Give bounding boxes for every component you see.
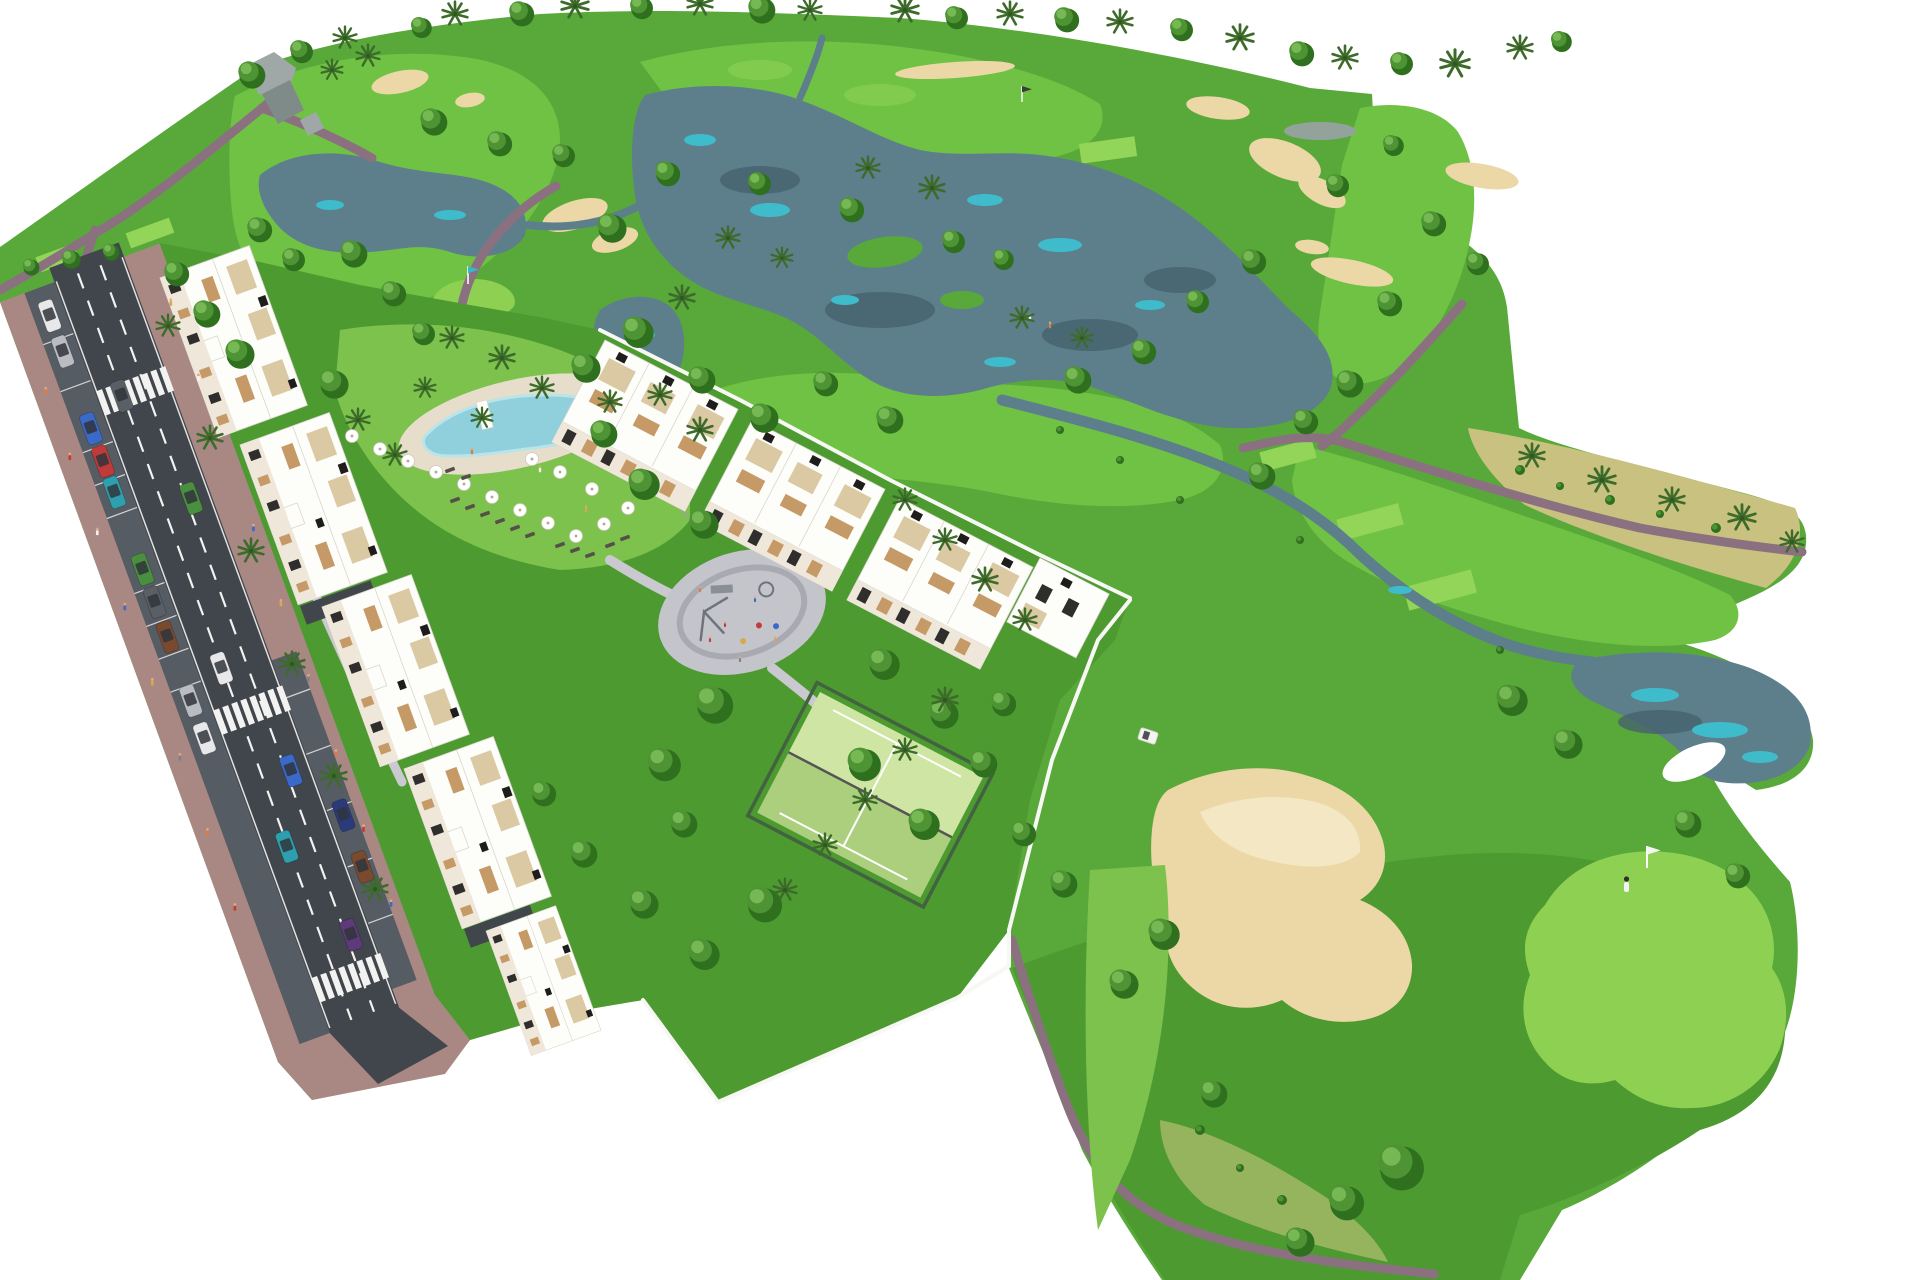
umbrella-icon xyxy=(526,453,539,466)
umbrella-icon xyxy=(586,483,599,496)
bush-icon xyxy=(1116,456,1124,464)
golf-resort-render: Aerial 3D architectural rendering of a g… xyxy=(0,0,1920,1280)
water-reflection xyxy=(1144,267,1216,293)
bush-icon xyxy=(1556,482,1564,490)
umbrella-icon xyxy=(598,518,611,531)
umbrella-icon xyxy=(346,430,359,443)
person xyxy=(307,674,310,682)
water-highlight xyxy=(1692,722,1748,738)
slide-icon xyxy=(711,584,733,593)
person xyxy=(206,828,209,836)
person xyxy=(96,528,99,536)
umbrella-icon xyxy=(554,466,567,479)
person xyxy=(169,298,172,306)
person xyxy=(754,596,756,602)
person xyxy=(68,453,71,461)
bush-icon xyxy=(1515,465,1525,475)
golfer xyxy=(1049,322,1051,329)
aerial-render: Aerial 3D architectural rendering of a g… xyxy=(0,0,1920,1280)
golfer xyxy=(1624,876,1629,892)
water-highlight xyxy=(316,200,344,210)
bush-icon xyxy=(1195,1125,1205,1135)
person xyxy=(123,603,126,611)
water-reflection xyxy=(1618,710,1702,734)
umbrella-icon xyxy=(622,502,635,515)
mound xyxy=(844,84,916,106)
person xyxy=(335,749,338,757)
water-highlight xyxy=(434,210,466,220)
person xyxy=(774,636,776,642)
umbrella-icon xyxy=(542,517,555,530)
mound xyxy=(728,60,792,80)
person xyxy=(252,524,255,532)
person xyxy=(539,466,541,473)
person xyxy=(724,621,726,627)
water-highlight xyxy=(1135,300,1165,310)
person xyxy=(739,656,741,662)
person xyxy=(709,636,711,642)
water-highlight xyxy=(1742,751,1778,763)
bush-icon xyxy=(1277,1195,1287,1205)
umbrella-icon xyxy=(402,455,415,468)
person xyxy=(234,903,237,911)
lake-island xyxy=(940,291,984,309)
water-highlight xyxy=(1038,238,1082,252)
person xyxy=(390,899,393,907)
pond-gray xyxy=(1284,122,1356,140)
person xyxy=(699,586,701,592)
water-highlight xyxy=(967,194,1003,206)
umbrella-icon xyxy=(486,491,499,504)
person xyxy=(585,506,587,513)
bush-icon xyxy=(1236,1164,1244,1172)
bush-icon xyxy=(1711,523,1721,533)
water-highlight xyxy=(684,134,716,146)
bush-icon xyxy=(1176,496,1184,504)
bush-icon xyxy=(1496,646,1504,654)
water-highlight xyxy=(1631,688,1679,702)
umbrella-icon xyxy=(374,443,387,456)
person xyxy=(471,448,473,455)
person xyxy=(362,824,365,832)
bush-icon xyxy=(1056,426,1064,434)
bush-icon xyxy=(1656,510,1664,518)
person xyxy=(151,678,154,686)
bush-icon xyxy=(1605,495,1615,505)
person xyxy=(197,374,200,382)
water-highlight xyxy=(1388,586,1412,594)
person xyxy=(280,599,283,607)
person xyxy=(179,753,182,761)
person xyxy=(44,387,47,395)
umbrella-icon xyxy=(514,504,527,517)
water-highlight xyxy=(984,357,1016,367)
umbrella-icon xyxy=(430,466,443,479)
bush-icon xyxy=(1296,536,1304,544)
water-highlight xyxy=(750,203,790,217)
umbrella-icon xyxy=(570,530,583,543)
water-highlight xyxy=(831,295,859,305)
main-green xyxy=(1523,851,1786,1108)
